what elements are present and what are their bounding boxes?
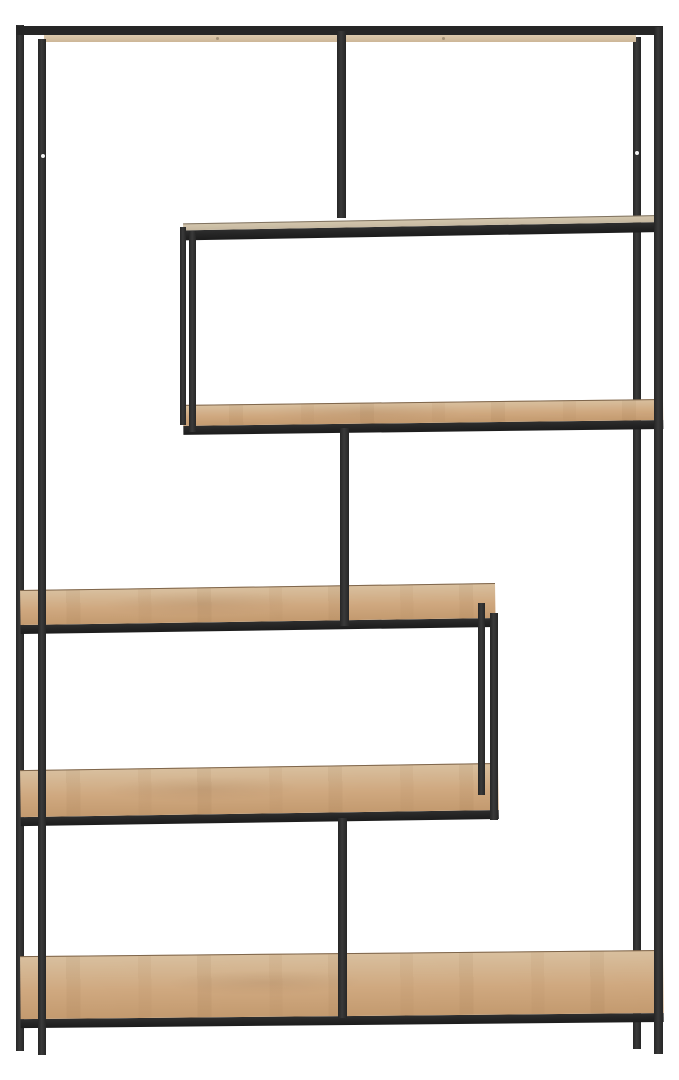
screw-hole-left [41, 154, 45, 158]
frame-leg-front-left [38, 39, 46, 1055]
shelf-3 [20, 583, 496, 634]
frame-leg-back-right [633, 37, 641, 1049]
center-post-middle [340, 428, 349, 626]
top-screw-dot [216, 37, 219, 40]
shelf-1 [183, 215, 662, 240]
center-post-upper [337, 31, 346, 218]
shelf-4-wood [20, 763, 499, 817]
left-support-post-back [180, 227, 186, 425]
shelf-4 [20, 763, 499, 826]
right-support-post-front [490, 613, 498, 820]
bookshelf-product-photo [0, 0, 679, 1080]
left-support-post-front [189, 231, 196, 432]
frame-leg-back-left [16, 25, 24, 1051]
shelf-3-wood [20, 583, 495, 625]
screw-hole-right [635, 151, 639, 155]
center-post-lower [338, 818, 347, 1018]
top-screw-dot [442, 37, 445, 40]
right-support-post-back [478, 603, 485, 795]
frame-leg-front-right [654, 27, 663, 1054]
shelf-2 [183, 399, 663, 435]
